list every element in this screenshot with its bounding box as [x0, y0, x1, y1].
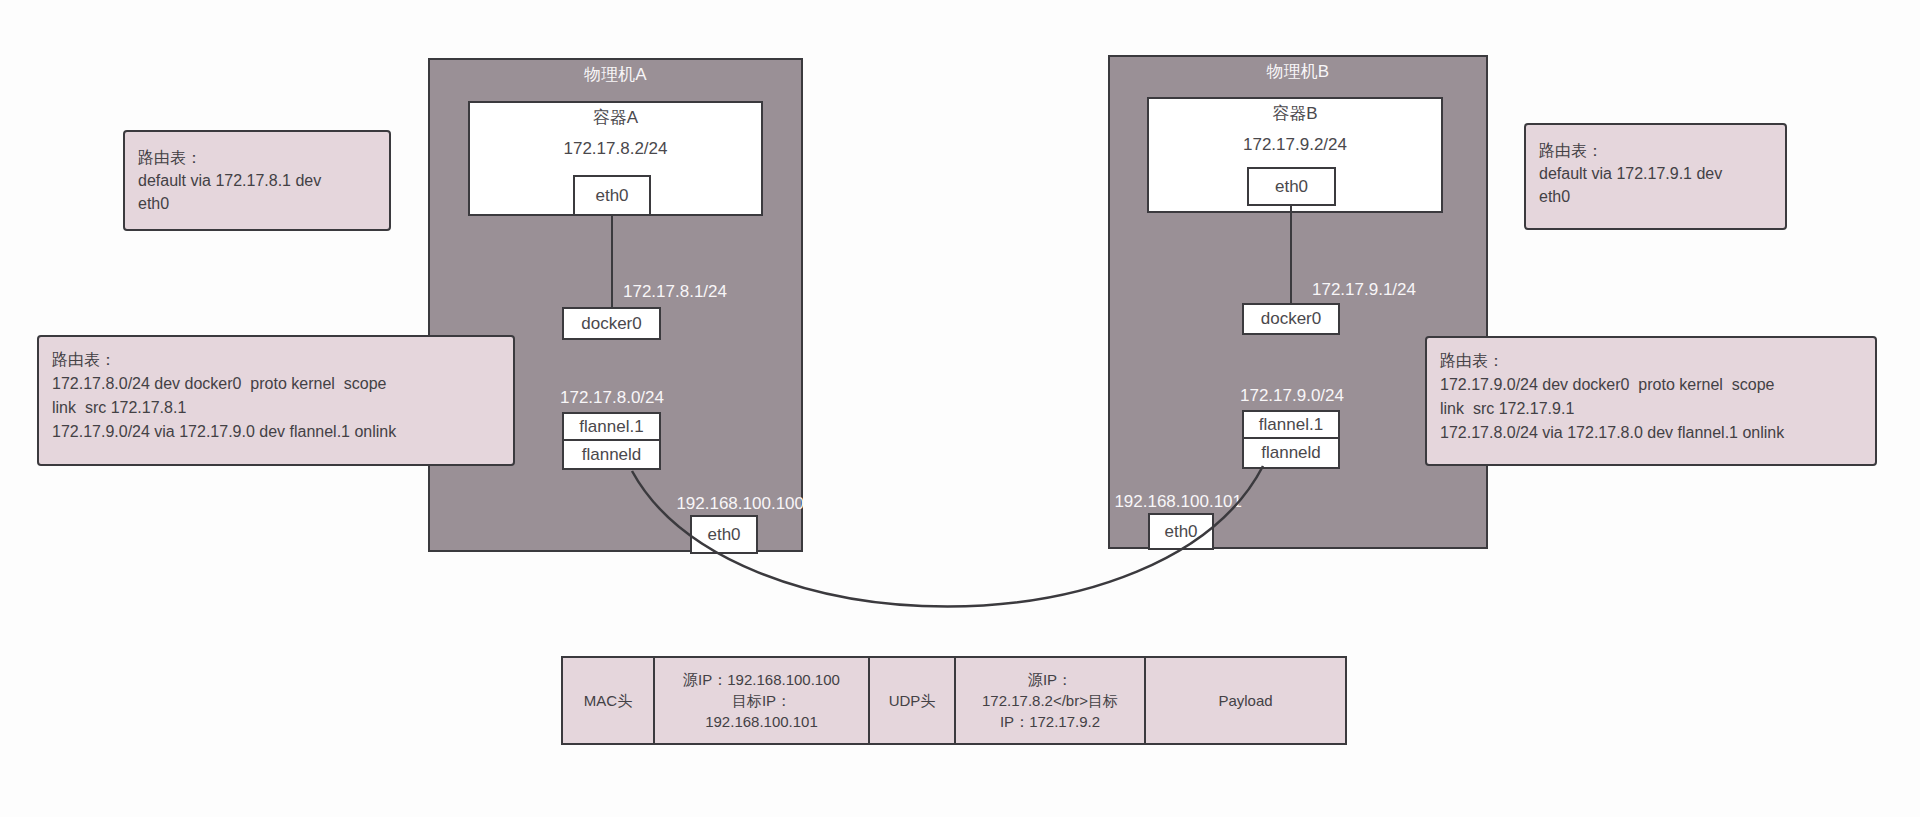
route-table-title: 路由表：: [52, 348, 500, 372]
host-a-title: 物理机A: [428, 63, 803, 86]
route-table-title: 路由表：: [1440, 349, 1862, 373]
route-table-title: 路由表：: [1539, 139, 1772, 162]
route-entry: 172.17.8.0/24 dev docker0 proto kernel s…: [52, 372, 500, 396]
packet-cell-line: 目标IP：: [732, 690, 791, 711]
packet-cell-line: 源IP：192.168.100.100: [683, 669, 840, 690]
host-b-ip-label: 192.168.100.101: [1110, 492, 1242, 512]
route-table-a-container: 路由表： default via 172.17.8.1 dev eth0: [123, 130, 391, 231]
route-table-title: 路由表：: [138, 146, 376, 169]
route-entry: 172.17.9.0/24 dev docker0 proto kernel s…: [1440, 373, 1862, 397]
host-b-eth0-box: eth0: [1148, 513, 1214, 550]
packet-cell-mac-header: MAC头: [561, 656, 655, 745]
host-b-bridge-ip-label: 172.17.9.1/24: [1312, 280, 1416, 300]
container-a-title: 容器A: [468, 106, 763, 129]
route-entry: eth0: [1539, 185, 1772, 208]
route-table-b-container: 路由表： default via 172.17.9.1 dev eth0: [1524, 123, 1787, 230]
packet-cell-line: Payload: [1218, 690, 1272, 711]
route-entry: 172.17.9.0/24 via 172.17.9.0 dev flannel…: [52, 420, 500, 444]
host-b-flannel1-box: flannel.1: [1242, 410, 1340, 439]
packet-cell-line: 192.168.100.101: [705, 711, 818, 732]
host-a-ip-label: 192.168.100.100: [671, 494, 804, 514]
container-b-eth0-box: eth0: [1247, 167, 1336, 206]
packet-cell-line: MAC头: [584, 690, 632, 711]
host-a-eth0-box: eth0: [690, 515, 758, 554]
route-entry: default via 172.17.8.1 dev: [138, 169, 376, 192]
container-b-ip: 172.17.9.2/24: [1147, 135, 1443, 155]
host-a-subnet-label: 172.17.8.0/24: [552, 388, 672, 408]
host-b-subnet-label: 172.17.9.0/24: [1232, 386, 1352, 406]
host-b-flanneld-box: flanneld: [1242, 437, 1340, 469]
host-b-title: 物理机B: [1108, 60, 1488, 83]
container-b-title: 容器B: [1147, 102, 1443, 125]
route-entry: 172.17.8.0/24 via 172.17.8.0 dev flannel…: [1440, 421, 1862, 445]
host-b-docker0-box: docker0: [1242, 303, 1340, 335]
packet-cell-line: IP：172.17.9.2: [1000, 711, 1100, 732]
route-entry: eth0: [138, 192, 376, 215]
flannel-network-diagram: 物理机A 容器A 172.17.8.2/24 eth0 172.17.8.1/2…: [0, 0, 1920, 817]
container-a-eth0-box: eth0: [573, 175, 651, 216]
packet-cell-payload: Payload: [1144, 656, 1347, 745]
packet-cell-inner-ip: 源IP： 172.17.8.2</br>目标 IP：172.17.9.2: [954, 656, 1146, 745]
host-a-flannel1-box: flannel.1: [562, 412, 661, 441]
container-a-ip: 172.17.8.2/24: [468, 139, 763, 159]
packet-cell-line: 源IP：: [1028, 669, 1072, 690]
route-entry: link src 172.17.8.1: [52, 396, 500, 420]
host-a-flanneld-box: flanneld: [562, 439, 661, 470]
packet-structure: MAC头 源IP：192.168.100.100 目标IP： 192.168.1…: [561, 656, 1347, 745]
packet-cell-line: UDP头: [889, 690, 936, 711]
route-entry: default via 172.17.9.1 dev: [1539, 162, 1772, 185]
route-table-b-host: 路由表： 172.17.9.0/24 dev docker0 proto ker…: [1425, 336, 1877, 466]
host-a-bridge-ip-label: 172.17.8.1/24: [623, 282, 727, 302]
host-a-docker0-box: docker0: [562, 307, 661, 340]
packet-cell-outer-ip: 源IP：192.168.100.100 目标IP： 192.168.100.10…: [653, 656, 870, 745]
packet-cell-line: 172.17.8.2</br>目标: [982, 690, 1118, 711]
route-entry: link src 172.17.9.1: [1440, 397, 1862, 421]
packet-cell-udp-header: UDP头: [868, 656, 956, 745]
route-table-a-host: 路由表： 172.17.8.0/24 dev docker0 proto ker…: [37, 335, 515, 466]
